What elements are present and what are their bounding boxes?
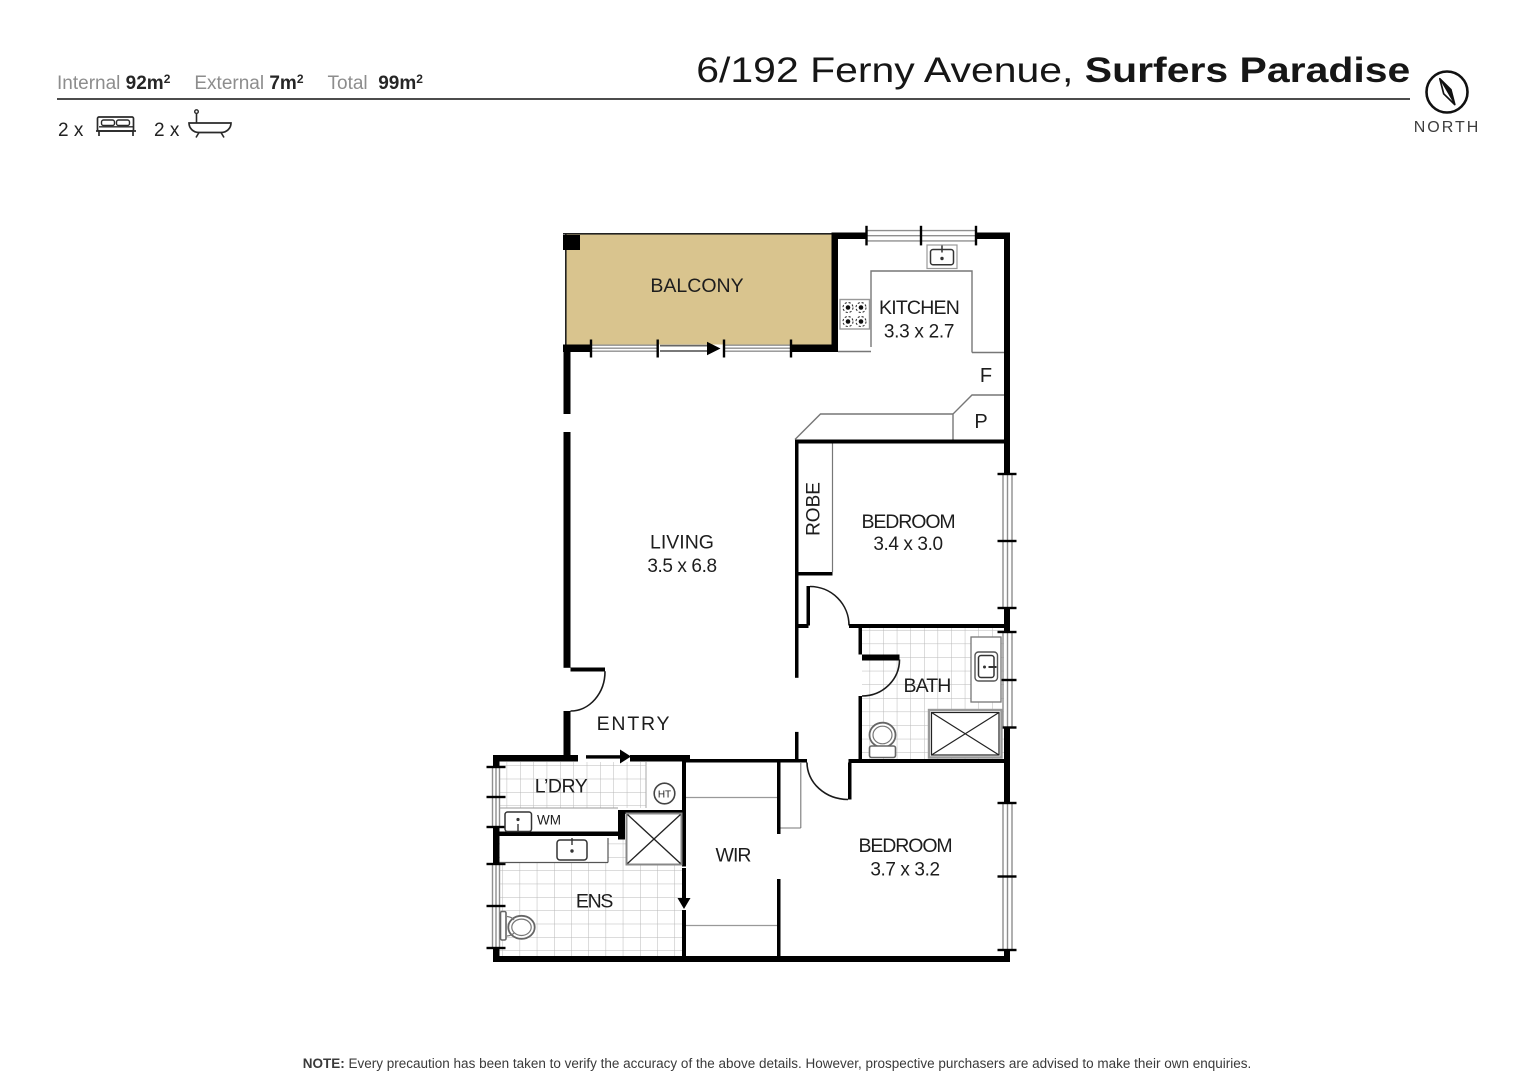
svg-text:P: P <box>974 411 987 433</box>
svg-text:BEDROOM: BEDROOM <box>861 511 954 533</box>
svg-text:KITCHEN: KITCHEN <box>879 297 959 319</box>
svg-text:3.5 x 6.8: 3.5 x 6.8 <box>647 556 716 577</box>
svg-text:LIVING: LIVING <box>650 532 714 554</box>
svg-text:ENS: ENS <box>576 891 613 913</box>
svg-text:BALCONY: BALCONY <box>650 275 743 297</box>
svg-text:WIR: WIR <box>716 845 752 867</box>
svg-text:ENTRY: ENTRY <box>597 713 672 735</box>
svg-text:3.7 x 3.2: 3.7 x 3.2 <box>870 860 939 881</box>
svg-text:WM: WM <box>537 813 561 828</box>
svg-text:BEDROOM: BEDROOM <box>858 835 951 857</box>
svg-text:3.3 x 2.7: 3.3 x 2.7 <box>884 322 954 343</box>
svg-text:HT: HT <box>658 790 671 801</box>
svg-text:L’DRY: L’DRY <box>535 776 588 798</box>
svg-text:ROBE: ROBE <box>804 482 825 536</box>
svg-text:BATH: BATH <box>904 675 951 697</box>
svg-text:3.4 x 3.0: 3.4 x 3.0 <box>873 534 942 555</box>
svg-text:F: F <box>980 365 992 387</box>
